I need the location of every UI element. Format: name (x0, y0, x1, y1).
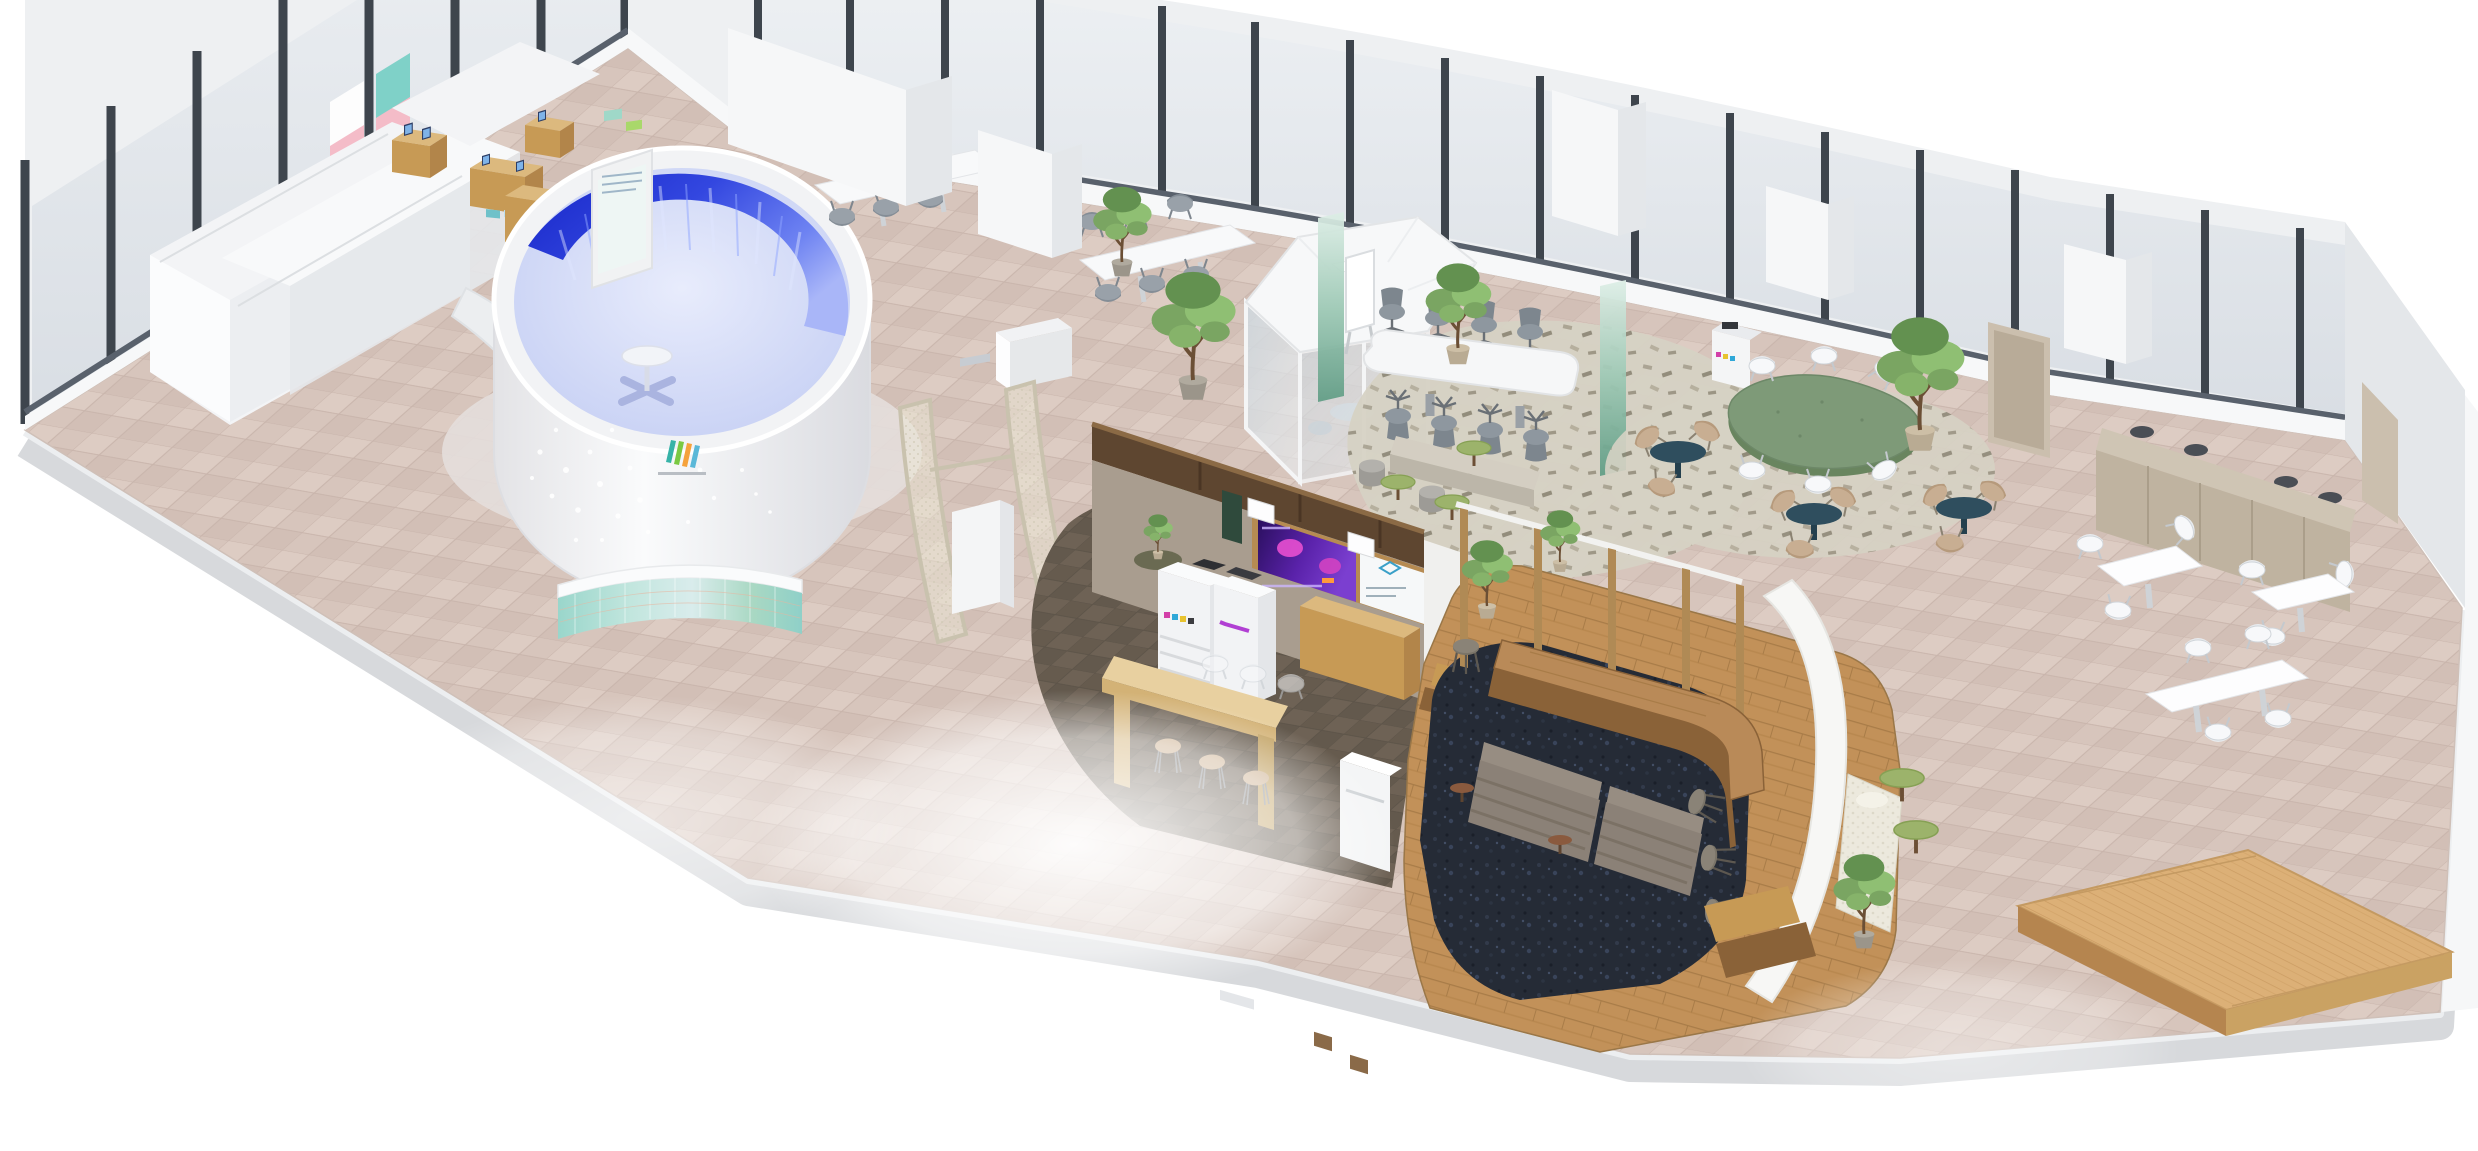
floorplan-render (0, 0, 2478, 1151)
boucle-bench (1836, 774, 1902, 932)
office-floorplan-screenshot: { "scene": { "title": "Isometric 3D rend… (0, 0, 2478, 1151)
whiteboard (1346, 250, 1374, 332)
green-curtain (1318, 212, 1344, 402)
